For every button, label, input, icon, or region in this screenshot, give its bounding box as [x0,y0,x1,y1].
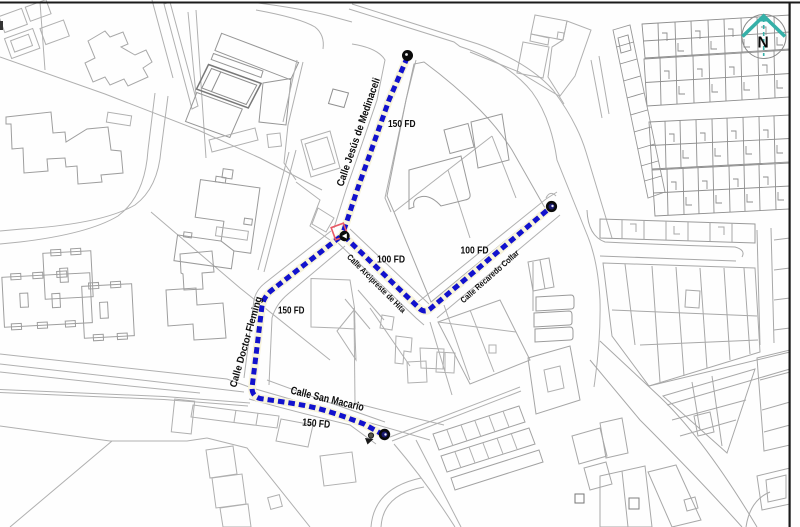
svg-text:150 FD: 150 FD [302,417,331,431]
svg-text:150 FD: 150 FD [388,118,416,130]
svg-text:100 FD: 100 FD [461,245,489,257]
svg-text:100 FD: 100 FD [377,254,405,266]
svg-text:150 FD: 150 FD [278,305,305,317]
svg-text:N: N [758,35,769,52]
